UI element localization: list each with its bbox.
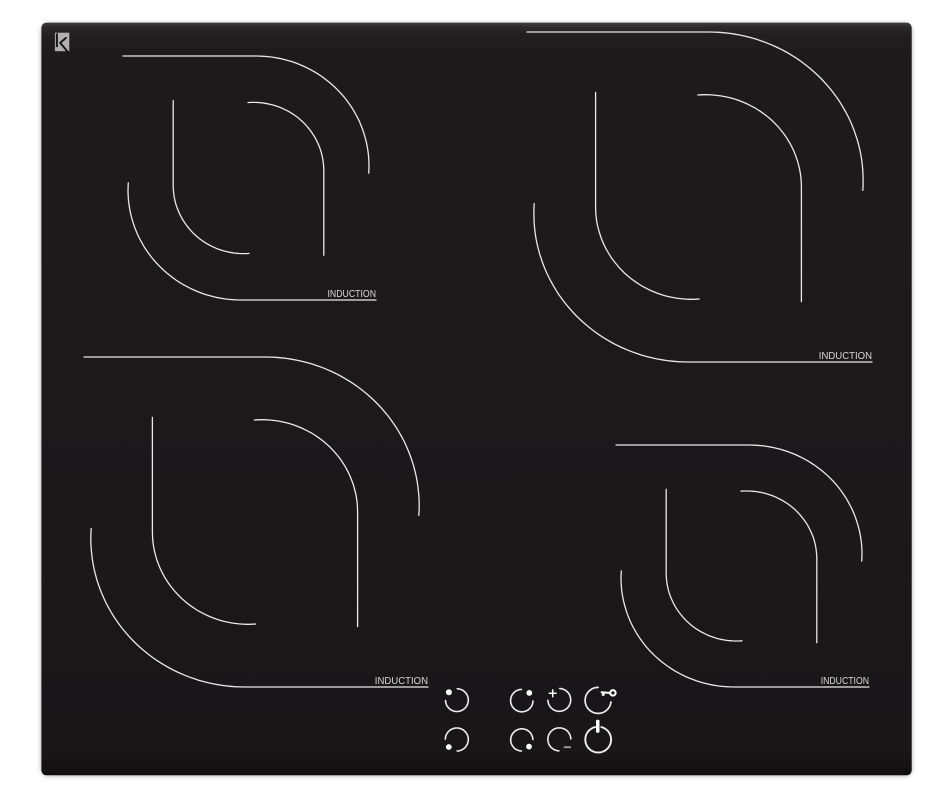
svg-text:INDUCTION: INDUCTION: [821, 676, 869, 687]
svg-text:INDUCTION: INDUCTION: [819, 351, 872, 362]
svg-text:INDUCTION: INDUCTION: [328, 289, 377, 300]
svg-text:INDUCTION: INDUCTION: [375, 676, 428, 687]
